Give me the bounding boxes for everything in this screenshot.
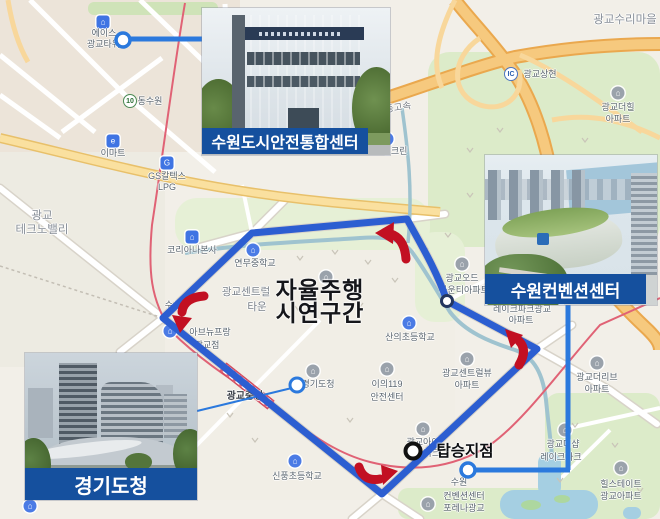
route-title-line2: 시연구간 (276, 302, 365, 325)
convention-center-marker (461, 463, 475, 477)
arrow-right (505, 329, 524, 365)
safety-center-marker (116, 33, 130, 47)
boarding-point-label: 탑승지점 (436, 439, 493, 461)
provincial-office-marker (290, 378, 304, 392)
office-tower (59, 363, 97, 445)
office-slab-building (101, 382, 163, 444)
route-node-marker (442, 296, 453, 307)
route-title-line1: 자율주행 (276, 279, 365, 302)
callout-label-provincial-office: 경기도청 (25, 468, 197, 500)
boarding-point-marker (406, 444, 421, 459)
arrow-top (375, 222, 406, 259)
autonomous-driving-route-map: ⌂에이스광교타워110동수원e이마트GGS칼텍스LPGSSK엔크린영동고속광교수… (0, 0, 660, 519)
callout-label-convention-center: 수원컨벤션센터 (485, 274, 646, 304)
route-section-title: 자율주행 시연구간 (276, 279, 365, 325)
callout-label-safety-center: 수원도시안전통합센터 (202, 128, 368, 154)
building-sign-band (245, 27, 363, 40)
